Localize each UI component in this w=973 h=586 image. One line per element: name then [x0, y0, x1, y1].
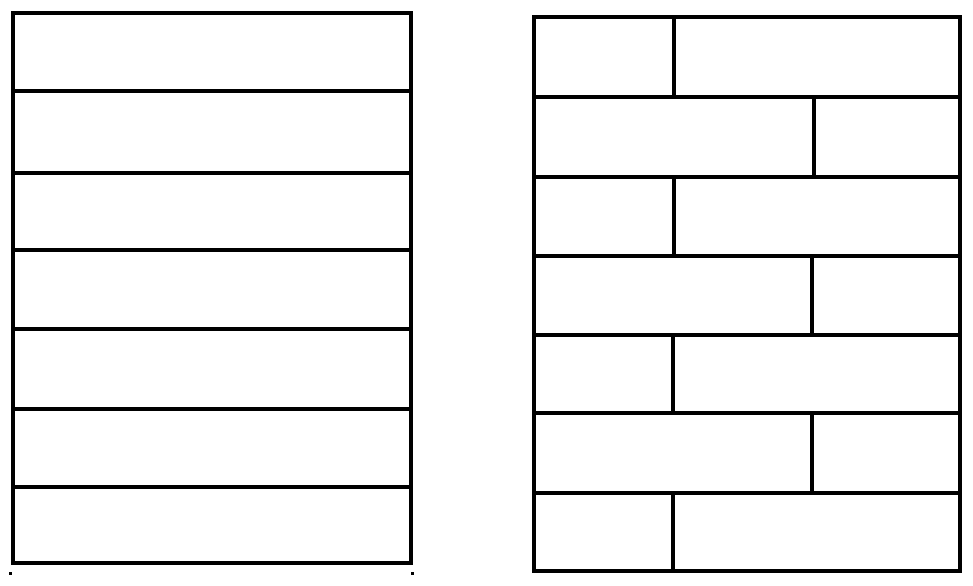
plank	[671, 495, 958, 569]
plank-row	[15, 15, 409, 89]
plank	[15, 93, 409, 170]
plank-row	[15, 89, 409, 170]
plank-row	[15, 327, 409, 407]
plank	[536, 19, 672, 95]
plank-row	[536, 95, 958, 174]
plank-row	[15, 248, 409, 326]
plank	[810, 415, 958, 490]
plank	[671, 337, 958, 411]
plank	[672, 19, 958, 95]
plank	[15, 331, 409, 407]
plank-row	[536, 491, 958, 569]
plank	[15, 489, 409, 561]
figure-canvas	[0, 0, 973, 586]
plank	[536, 415, 810, 490]
plank	[536, 179, 672, 254]
plank	[15, 15, 409, 89]
plank-row	[15, 407, 409, 485]
plank-row	[536, 411, 958, 490]
plank	[15, 252, 409, 326]
plank-row	[536, 175, 958, 254]
plank-row	[536, 254, 958, 332]
plank	[536, 258, 810, 332]
scan-artifact-dot	[9, 572, 12, 575]
plank	[15, 411, 409, 485]
plank	[536, 99, 812, 174]
plank-row	[536, 333, 958, 411]
scan-artifact-dot	[411, 572, 414, 575]
plank-row	[15, 485, 409, 561]
plank	[15, 175, 409, 249]
plank	[536, 337, 671, 411]
plank	[672, 179, 958, 254]
plank	[812, 99, 958, 174]
plank	[810, 258, 958, 332]
plank-row	[536, 19, 958, 95]
plank-row	[15, 171, 409, 249]
panel-staggered-planks	[532, 15, 962, 573]
panel-aligned-planks	[11, 11, 413, 565]
plank	[536, 495, 671, 569]
